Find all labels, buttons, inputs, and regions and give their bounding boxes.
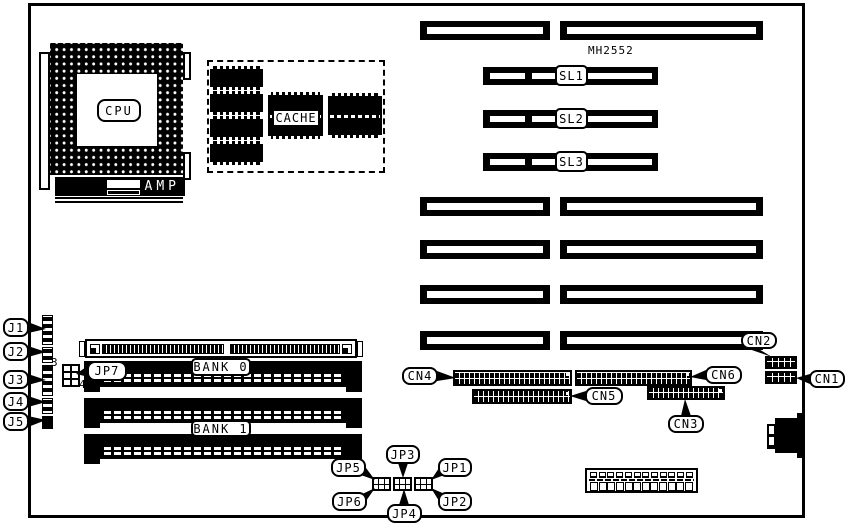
cpu-clip-bottom-right bbox=[183, 152, 191, 180]
jp2-label: JP2 bbox=[438, 492, 472, 511]
pin bbox=[616, 482, 624, 491]
cache-chip bbox=[210, 141, 263, 165]
cpu-retention-bracket-left bbox=[39, 52, 50, 190]
pin bbox=[406, 479, 410, 484]
simm-socket-1-endcap-right bbox=[357, 341, 363, 357]
cn6-label: CN6 bbox=[705, 366, 742, 384]
jp6-label: JP6 bbox=[332, 492, 367, 511]
pin bbox=[72, 373, 78, 378]
pin bbox=[677, 472, 684, 478]
jp4-label: JP4 bbox=[387, 504, 422, 523]
sl3-label-text: SL3 bbox=[559, 155, 584, 169]
j4-label-text: J4 bbox=[8, 395, 24, 409]
simm-contact-row bbox=[230, 344, 340, 354]
cn1-connector bbox=[765, 371, 797, 384]
jp7-pin3-label: 3 bbox=[51, 356, 59, 369]
pin bbox=[64, 366, 70, 371]
slot-stripe bbox=[490, 73, 525, 79]
socket-tab bbox=[346, 361, 362, 392]
j1-label: J1 bbox=[3, 318, 29, 337]
jumper-block-1 bbox=[372, 477, 391, 491]
socket-pin-dashes bbox=[104, 411, 342, 414]
pin bbox=[607, 482, 615, 491]
pin bbox=[668, 472, 675, 478]
keyboard-connector-slot bbox=[769, 426, 774, 434]
j2-label: J2 bbox=[3, 342, 29, 361]
cn2-label-text: CN2 bbox=[747, 334, 772, 348]
amp-underline-1 bbox=[55, 197, 183, 199]
pin bbox=[416, 479, 420, 484]
socket-pin-dashes bbox=[104, 452, 342, 455]
cn3-label-text: CN3 bbox=[674, 417, 699, 431]
pin bbox=[650, 482, 658, 491]
jp5-label: JP5 bbox=[331, 458, 366, 477]
cache-chip bbox=[210, 116, 263, 140]
jumper-block-2 bbox=[393, 477, 412, 491]
pin bbox=[642, 472, 649, 478]
jp1-label-text: JP1 bbox=[443, 461, 468, 475]
keyboard-connector-slot bbox=[769, 437, 774, 445]
slot-stripe bbox=[427, 291, 543, 298]
jp4-label-text: JP4 bbox=[392, 507, 417, 521]
pin bbox=[64, 380, 70, 385]
pin bbox=[668, 482, 676, 491]
chipset-label: MH2552 bbox=[588, 44, 634, 57]
slot-stripe bbox=[567, 337, 756, 344]
slot-stripe bbox=[427, 246, 543, 253]
pin1-notch bbox=[719, 389, 722, 392]
pin bbox=[590, 472, 597, 478]
pin bbox=[625, 472, 632, 478]
slot-stripe bbox=[567, 246, 756, 253]
cn2-connector bbox=[765, 356, 797, 369]
pin bbox=[395, 479, 399, 484]
cache-chip bbox=[210, 91, 263, 115]
pin bbox=[686, 472, 693, 478]
j1-connector bbox=[42, 315, 53, 345]
pin bbox=[421, 485, 425, 490]
j5-label: J5 bbox=[3, 412, 29, 431]
j3-label-text: J3 bbox=[8, 373, 24, 387]
j3-connector bbox=[42, 365, 53, 396]
amp-window-outline bbox=[107, 190, 140, 195]
cn5-label: CN5 bbox=[585, 387, 623, 405]
bank1-label: BANK 1 bbox=[191, 420, 251, 437]
jp5-label-text: JP5 bbox=[336, 461, 361, 475]
pin bbox=[400, 485, 404, 490]
bank0-label: BANK 0 bbox=[191, 358, 251, 376]
pin bbox=[590, 482, 598, 491]
cn4-label: CN4 bbox=[402, 367, 438, 385]
amp-underline-2 bbox=[55, 201, 183, 203]
power-pin-row-bottom bbox=[590, 482, 693, 491]
pin bbox=[379, 479, 383, 484]
sl2-label-text: SL2 bbox=[559, 112, 584, 126]
pin bbox=[651, 472, 658, 478]
pin bbox=[427, 485, 431, 490]
cn1-label-text: CN1 bbox=[815, 372, 840, 386]
cn5-connector bbox=[472, 389, 572, 404]
keyboard-connector-body bbox=[797, 413, 805, 458]
jp7-jumper-block bbox=[62, 364, 80, 387]
j3-label: J3 bbox=[3, 370, 29, 389]
simm-latch bbox=[342, 344, 352, 354]
latch-mark bbox=[91, 348, 96, 353]
pin bbox=[616, 472, 623, 478]
cache-chip bbox=[210, 66, 263, 90]
cn4-label-text: CN4 bbox=[408, 369, 433, 383]
j5-connector bbox=[42, 416, 53, 429]
pin bbox=[607, 472, 614, 478]
isa-slot-short bbox=[420, 331, 550, 350]
power-pin-row-top bbox=[590, 472, 693, 478]
isa-slot-long bbox=[560, 21, 763, 40]
sl1-label: SL1 bbox=[555, 65, 588, 86]
socket-tab bbox=[346, 398, 362, 428]
pin bbox=[385, 479, 389, 484]
power-connector bbox=[585, 468, 698, 493]
cn2-label: CN2 bbox=[741, 332, 777, 349]
slot-stripe bbox=[588, 116, 652, 122]
cn5-label-text: CN5 bbox=[592, 389, 617, 403]
bank0-label-text: BANK 0 bbox=[193, 360, 248, 374]
keyboard-connector bbox=[775, 418, 797, 453]
jp6-label-text: JP6 bbox=[337, 495, 362, 509]
j1-label-text: J1 bbox=[8, 321, 24, 335]
isa-slot-short bbox=[420, 21, 550, 40]
j4-connector bbox=[42, 398, 53, 414]
pin bbox=[685, 482, 693, 491]
cache-label: CACHE bbox=[272, 109, 320, 127]
cn6-connector bbox=[575, 370, 692, 386]
cpu-label: CPU bbox=[97, 99, 141, 122]
j5-label-text: J5 bbox=[8, 415, 24, 429]
jp3-label: JP3 bbox=[386, 445, 420, 464]
chip-pin-row bbox=[330, 115, 380, 118]
slot-stripe bbox=[567, 291, 756, 298]
cn4-connector bbox=[453, 370, 572, 386]
slot-stripe bbox=[427, 337, 543, 344]
simm-latch bbox=[90, 344, 100, 354]
pin bbox=[416, 485, 420, 490]
pin bbox=[385, 485, 389, 490]
slot-stripe bbox=[532, 159, 555, 165]
pin bbox=[427, 479, 431, 484]
pin bbox=[625, 482, 633, 491]
simm-socket-4 bbox=[84, 434, 362, 464]
pin1-notch bbox=[566, 392, 569, 395]
cache-label-text: CACHE bbox=[275, 111, 316, 125]
bank1-label-text: BANK 1 bbox=[193, 422, 248, 436]
pin bbox=[676, 482, 684, 491]
pin bbox=[633, 482, 641, 491]
slot-stripe bbox=[490, 116, 525, 122]
pin bbox=[659, 482, 667, 491]
simm-contact-row bbox=[102, 344, 224, 354]
slot-stripe bbox=[588, 159, 652, 165]
pin bbox=[421, 479, 425, 484]
power-separator bbox=[589, 479, 694, 481]
pin bbox=[72, 366, 78, 371]
socket-pin-dashes bbox=[104, 447, 342, 450]
pin bbox=[599, 472, 606, 478]
pin bbox=[72, 380, 78, 385]
pin bbox=[400, 479, 404, 484]
j2-label-text: J2 bbox=[8, 345, 24, 359]
slot-stripe bbox=[532, 116, 555, 122]
amp-voltage-regulator: AMP bbox=[55, 177, 185, 196]
jp7-pin4-label: 4 bbox=[79, 378, 87, 391]
jp1-label: JP1 bbox=[438, 458, 472, 477]
cn1-label: CN1 bbox=[809, 370, 845, 388]
isa-slot-short bbox=[420, 240, 550, 259]
pin1-notch bbox=[566, 373, 569, 376]
slot-stripe bbox=[427, 27, 543, 34]
isa-slot-short bbox=[420, 285, 550, 304]
slot-stripe bbox=[567, 27, 756, 34]
pin bbox=[379, 485, 383, 490]
pin1-notch bbox=[686, 373, 689, 376]
pin bbox=[660, 472, 667, 478]
cn3-connector bbox=[647, 386, 725, 400]
pin bbox=[64, 373, 70, 378]
pin bbox=[395, 485, 399, 490]
motherboard-diagram: CPU AMP CACHE MH2552 SL1 SL2 bbox=[0, 0, 850, 529]
socket-pin-dashes bbox=[104, 416, 342, 419]
jp2-label-text: JP2 bbox=[443, 495, 468, 509]
jp3-label-text: JP3 bbox=[391, 448, 416, 462]
slot-stripe bbox=[427, 203, 543, 210]
slot-stripe bbox=[490, 159, 525, 165]
sl1-label-text: SL1 bbox=[559, 69, 584, 83]
pin bbox=[406, 485, 410, 490]
socket-pin-dashes bbox=[104, 379, 342, 382]
pin bbox=[599, 482, 607, 491]
isa-slot-long bbox=[560, 197, 763, 216]
isa-slot-long bbox=[560, 331, 763, 350]
amp-label: AMP bbox=[145, 179, 180, 194]
slot-stripe bbox=[532, 73, 555, 79]
amp-window bbox=[107, 180, 140, 188]
cn6-label-text: CN6 bbox=[711, 368, 736, 382]
pin bbox=[642, 482, 650, 491]
pin bbox=[374, 485, 378, 490]
isa-slot-short bbox=[420, 197, 550, 216]
isa-slot-long bbox=[560, 285, 763, 304]
sl2-label: SL2 bbox=[555, 108, 588, 129]
sl3-label: SL3 bbox=[555, 151, 588, 172]
cpu-label-text: CPU bbox=[105, 104, 133, 118]
jp7-label-text: JP7 bbox=[95, 364, 120, 378]
jp7-label: JP7 bbox=[87, 361, 127, 381]
jumper-block-3 bbox=[414, 477, 433, 491]
pin bbox=[374, 479, 378, 484]
latch-mark bbox=[343, 348, 348, 353]
cn3-label: CN3 bbox=[668, 415, 704, 433]
cpu-clip-top-right bbox=[183, 52, 191, 80]
isa-slot-long bbox=[560, 240, 763, 259]
pin bbox=[634, 472, 641, 478]
slot-stripe bbox=[588, 73, 652, 79]
slot-stripe bbox=[567, 203, 756, 210]
j4-label: J4 bbox=[3, 392, 29, 411]
cache-chip-right bbox=[328, 93, 382, 138]
